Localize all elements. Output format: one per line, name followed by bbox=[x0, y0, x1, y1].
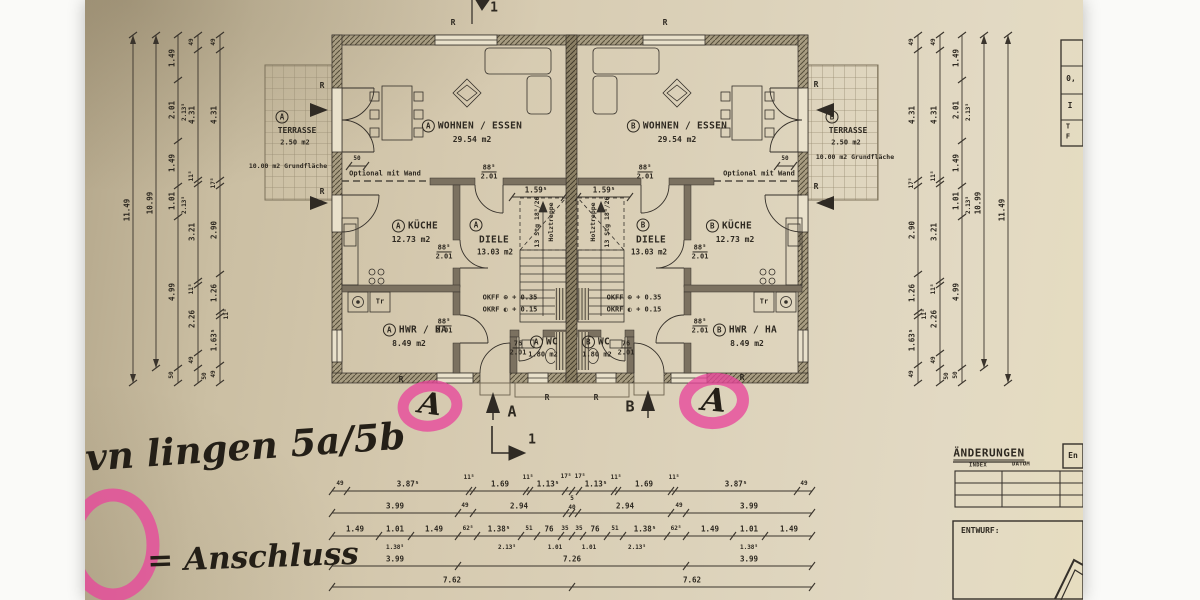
dim-label: 2.01 bbox=[168, 101, 176, 119]
dim-label: 17⁵ bbox=[211, 178, 217, 189]
dim-label: 11.49 bbox=[998, 199, 1006, 222]
dim-label: 10.99 bbox=[974, 192, 982, 215]
dim-label: 11⁵ bbox=[224, 309, 230, 320]
dim-label: 10.99 bbox=[146, 192, 154, 215]
dim-label: 11⁵ bbox=[669, 475, 680, 481]
dim-label: 49 bbox=[675, 503, 682, 509]
dim-label: 1.49 bbox=[346, 525, 364, 533]
dim-label: 4.31 bbox=[908, 106, 916, 124]
dim-label: 2.13⁵ bbox=[966, 196, 972, 214]
dim-label: 62⁵ bbox=[463, 526, 474, 532]
dim-label: 49 bbox=[461, 503, 468, 509]
dim-label: 1.01 bbox=[582, 545, 596, 551]
dim-label: 35 bbox=[575, 526, 582, 532]
dim-label: 1.63⁵ bbox=[210, 329, 218, 352]
dim-label: 5 bbox=[570, 496, 574, 502]
dimension-labels: 11.4910.991.492.012.13⁵1.491.012.13⁵4.99… bbox=[85, 0, 1083, 600]
dim-label: 11⁵ bbox=[523, 475, 534, 481]
dim-label: 49 bbox=[909, 38, 915, 45]
dim-label: 4.31 bbox=[210, 106, 218, 124]
dim-label: 1.59⁵ bbox=[593, 186, 616, 194]
dim-label: 11⁵ bbox=[922, 309, 928, 320]
dim-label: 11⁵ bbox=[189, 171, 195, 182]
dim-label: 50 bbox=[353, 156, 360, 162]
dim-label: 11⁵ bbox=[931, 171, 937, 182]
dim-label: 50 bbox=[169, 371, 175, 378]
dim-label: 35 bbox=[561, 526, 568, 532]
dim-label: 49 bbox=[931, 356, 937, 363]
dim-label: 2.26 bbox=[930, 310, 938, 328]
dim-label: 7.62 bbox=[683, 576, 701, 584]
dim-label: 1.49 bbox=[952, 49, 960, 67]
dim-label: 4.99 bbox=[168, 283, 176, 301]
dim-label: 3.99 bbox=[740, 555, 758, 563]
dim-label: 1.49 bbox=[780, 525, 798, 533]
dim-label: 2.01 bbox=[952, 101, 960, 119]
dim-label: 3.99 bbox=[386, 555, 404, 563]
dim-label: 1.01 bbox=[168, 192, 176, 210]
dim-label: 62⁵ bbox=[671, 526, 682, 532]
dim-label: 2.90 bbox=[210, 221, 218, 239]
dim-label: 40 bbox=[568, 505, 575, 511]
dim-label: 1.59⁵ bbox=[525, 186, 548, 194]
dim-label: 11.49 bbox=[123, 199, 131, 222]
dim-label: 49 bbox=[189, 38, 195, 45]
dim-label: 1.49 bbox=[701, 525, 719, 533]
dim-label: 1.01 bbox=[952, 192, 960, 210]
dim-label: 2.94 bbox=[616, 502, 634, 510]
dim-label: 4.31 bbox=[188, 106, 196, 124]
dim-label: 2.94 bbox=[510, 502, 528, 510]
dim-label: 49 bbox=[211, 38, 217, 45]
dim-label: 2.13⁵ bbox=[628, 545, 646, 551]
dim-label: 1.13⁵ bbox=[537, 480, 560, 488]
dim-label: 4.99 bbox=[952, 283, 960, 301]
dim-label: 49 bbox=[909, 370, 915, 377]
dim-label: 50 bbox=[202, 372, 208, 379]
dim-label: 51 bbox=[525, 526, 532, 532]
dim-label: 1.49 bbox=[952, 154, 960, 172]
dim-label: 1.49 bbox=[168, 49, 176, 67]
dim-label: 2.26 bbox=[188, 310, 196, 328]
dim-label: 1.01 bbox=[548, 545, 562, 551]
dim-label: 49 bbox=[800, 481, 807, 487]
dim-label: 17⁵ bbox=[561, 474, 572, 480]
dim-label: 50 bbox=[781, 156, 788, 162]
dim-label: 50 bbox=[953, 371, 959, 378]
dim-label: 11⁵ bbox=[611, 475, 622, 481]
dim-label: 1.63⁵ bbox=[908, 329, 916, 352]
dim-label: 1.13⁵ bbox=[585, 480, 608, 488]
dim-label: 49 bbox=[336, 481, 343, 487]
dim-label: 2.13⁵ bbox=[966, 103, 972, 121]
dim-label: 76 bbox=[544, 525, 553, 533]
blueprint-paper: A WOHNEN / ESSEN 29.54 m2 A KÜCHE 12.73 … bbox=[85, 0, 1083, 600]
dim-label: 4.31 bbox=[930, 106, 938, 124]
dim-label: 1.38⁵ bbox=[634, 525, 657, 533]
dim-label: 51 bbox=[611, 526, 618, 532]
dim-label: 3.21 bbox=[930, 223, 938, 241]
dim-label: 3.21 bbox=[188, 223, 196, 241]
dim-label: 17⁵ bbox=[909, 178, 915, 189]
dim-label: 1.69 bbox=[635, 480, 653, 488]
dim-label: 1.26 bbox=[908, 284, 916, 302]
screenshot-root: A WOHNEN / ESSEN 29.54 m2 A KÜCHE 12.73 … bbox=[0, 0, 1200, 600]
dim-label: 3.99 bbox=[386, 502, 404, 510]
dim-label: 2.13⁵ bbox=[182, 196, 188, 214]
dim-label: 7.26 bbox=[563, 555, 581, 563]
dim-label: 3.87⁵ bbox=[397, 480, 420, 488]
dim-label: 11⁵ bbox=[464, 475, 475, 481]
dim-label: 1.01 bbox=[386, 525, 404, 533]
dim-label: 1.01 bbox=[740, 525, 758, 533]
dim-label: 49 bbox=[211, 370, 217, 377]
dim-label: 1.69 bbox=[491, 480, 509, 488]
dim-label: 3.99 bbox=[740, 502, 758, 510]
dim-label: 1.38⁵ bbox=[740, 545, 758, 551]
dim-label: 11⁵ bbox=[931, 284, 937, 295]
dim-label: 50 bbox=[944, 372, 950, 379]
dim-label: 2.90 bbox=[908, 221, 916, 239]
dim-label: 3.87⁵ bbox=[725, 480, 748, 488]
dim-label: 2.13⁵ bbox=[498, 545, 516, 551]
dim-label: 1.38⁵ bbox=[386, 545, 404, 551]
dim-label: 7.62 bbox=[443, 576, 461, 584]
dim-label: 1.49 bbox=[425, 525, 443, 533]
dim-label: 49 bbox=[931, 38, 937, 45]
dim-label: 49 bbox=[189, 356, 195, 363]
dim-label: 1.49 bbox=[168, 154, 176, 172]
dim-label: 76 bbox=[590, 525, 599, 533]
dim-label: 1.38⁵ bbox=[488, 525, 511, 533]
dim-label: 11⁵ bbox=[189, 284, 195, 295]
dim-label: 1.26 bbox=[210, 284, 218, 302]
